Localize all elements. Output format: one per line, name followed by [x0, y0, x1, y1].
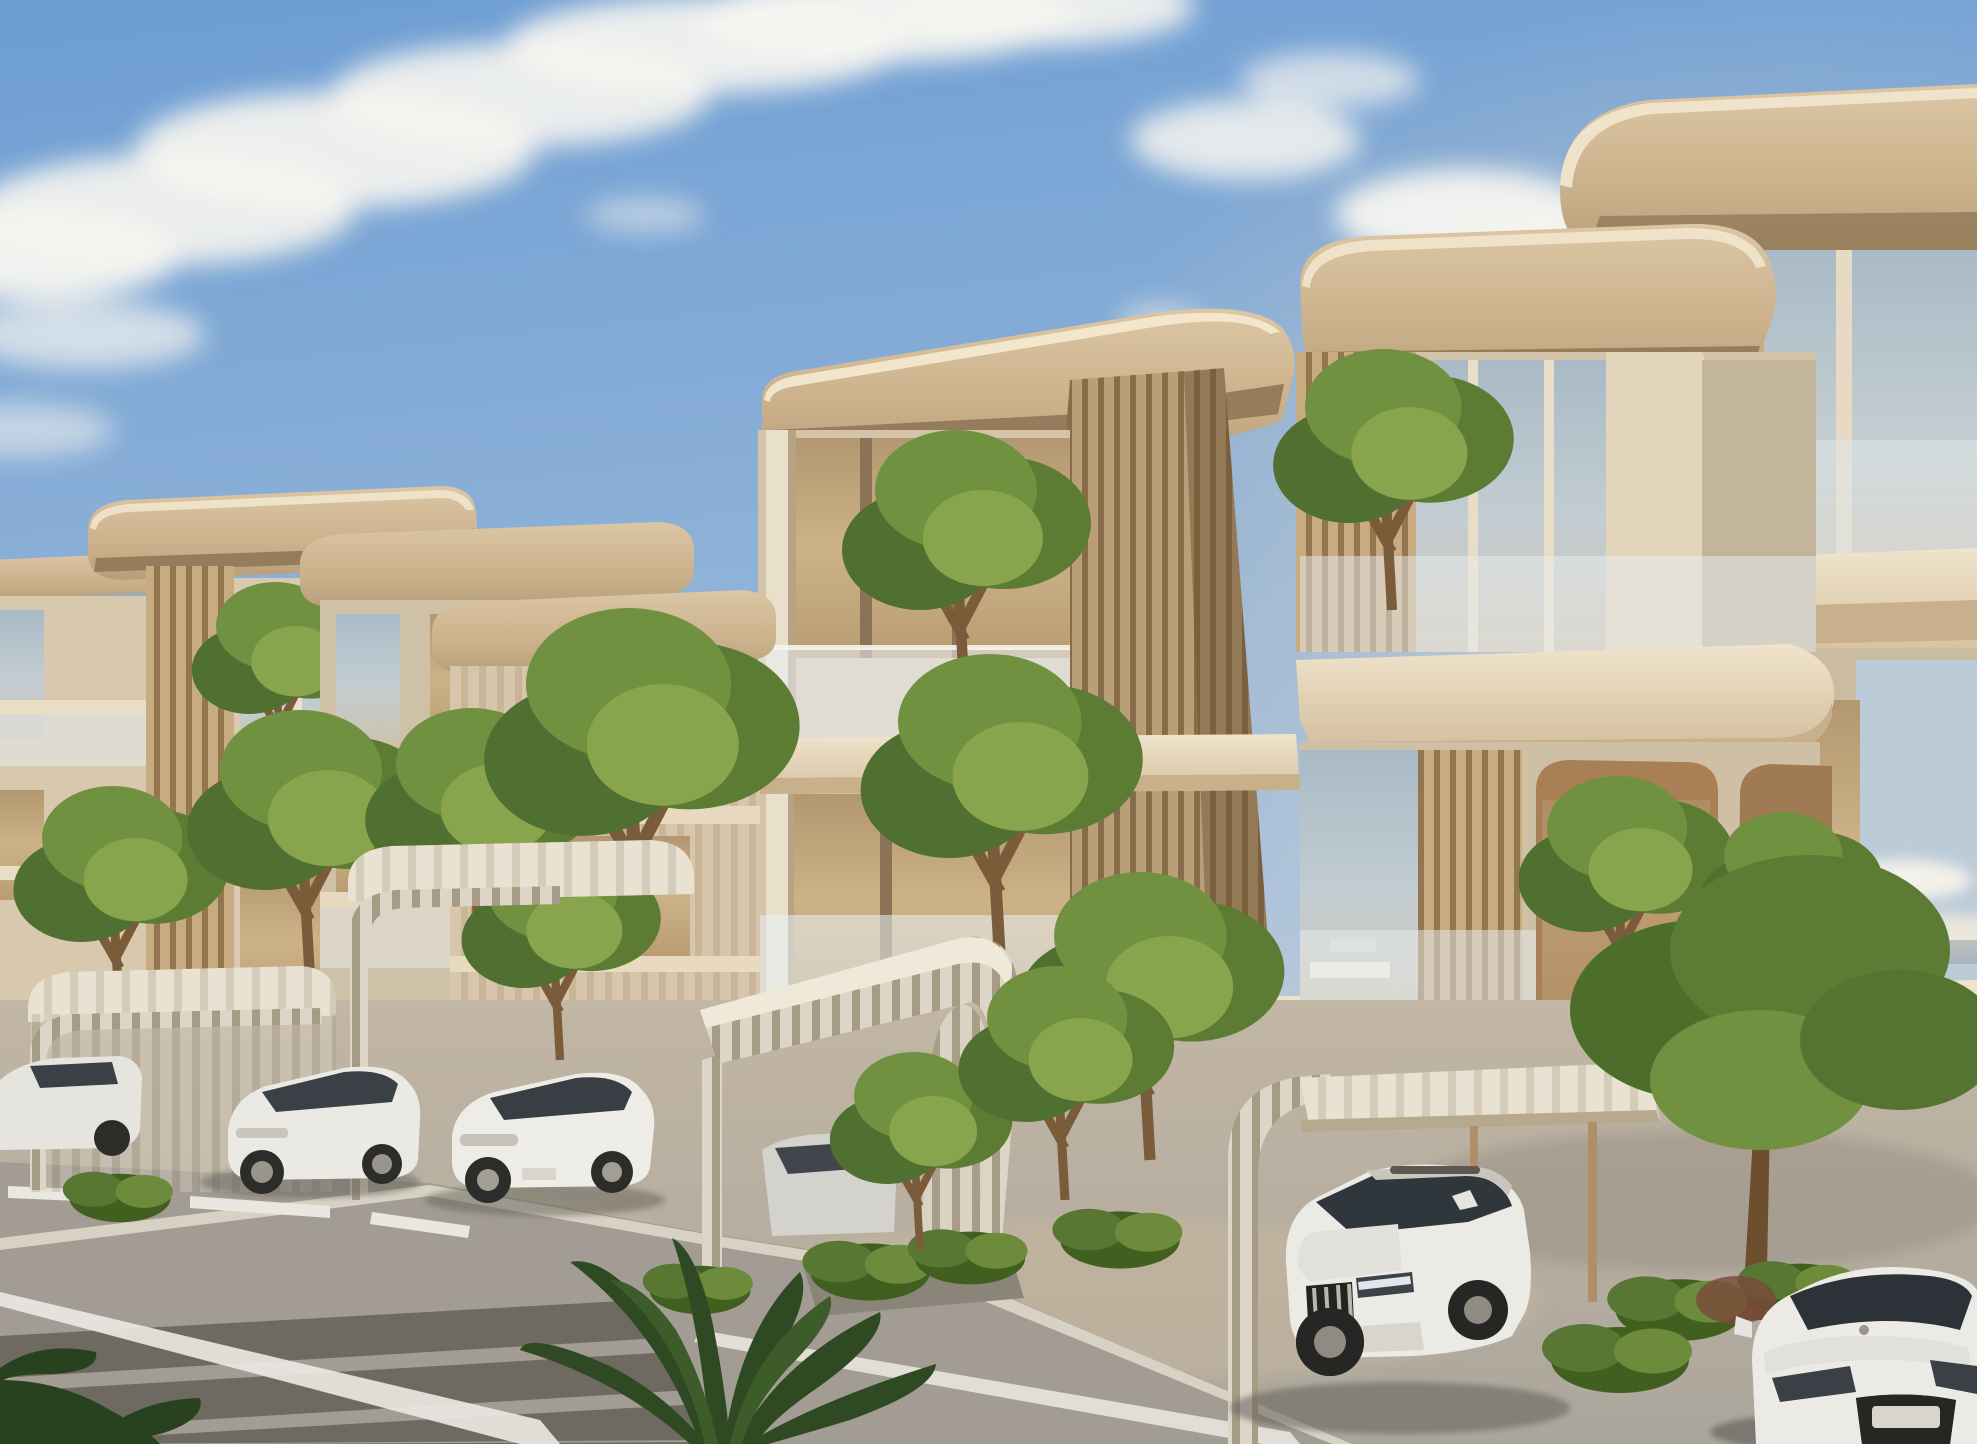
wheel-rim	[251, 1161, 273, 1183]
license-plate	[1872, 1406, 1940, 1428]
scene-canvas	[0, 0, 1977, 1444]
rail-top	[758, 645, 1070, 650]
architectural-render	[0, 0, 1977, 1444]
cloud	[1240, 52, 1420, 108]
cloud	[585, 197, 705, 233]
wheel	[94, 1120, 130, 1156]
car-shadow	[425, 1184, 665, 1216]
cars-partial-left-edge	[0, 1056, 142, 1156]
car-glass	[30, 1062, 118, 1088]
glass-rail	[0, 714, 150, 766]
cloud	[1130, 100, 1360, 180]
car-shadow	[1230, 1382, 1570, 1434]
canopy-ribs-left	[702, 1054, 722, 1300]
emblem	[1859, 1325, 1869, 1335]
wheel-rim	[477, 1169, 499, 1191]
wheel-rim	[602, 1162, 622, 1182]
license-plate	[522, 1168, 556, 1180]
wheel-rim	[1314, 1326, 1346, 1358]
grille	[236, 1128, 288, 1138]
suv-sunroof	[1390, 1166, 1480, 1174]
wheel-rim	[372, 1154, 392, 1174]
glass-rail	[1300, 556, 1816, 652]
balcony-slab	[1296, 644, 1834, 742]
skyline-reflection	[1310, 962, 1390, 978]
skyline-reflection	[1330, 940, 1376, 952]
canopy-post	[1588, 1122, 1597, 1302]
floor-slab	[0, 700, 150, 714]
wheel-rim	[1464, 1296, 1492, 1324]
grille	[460, 1134, 518, 1146]
